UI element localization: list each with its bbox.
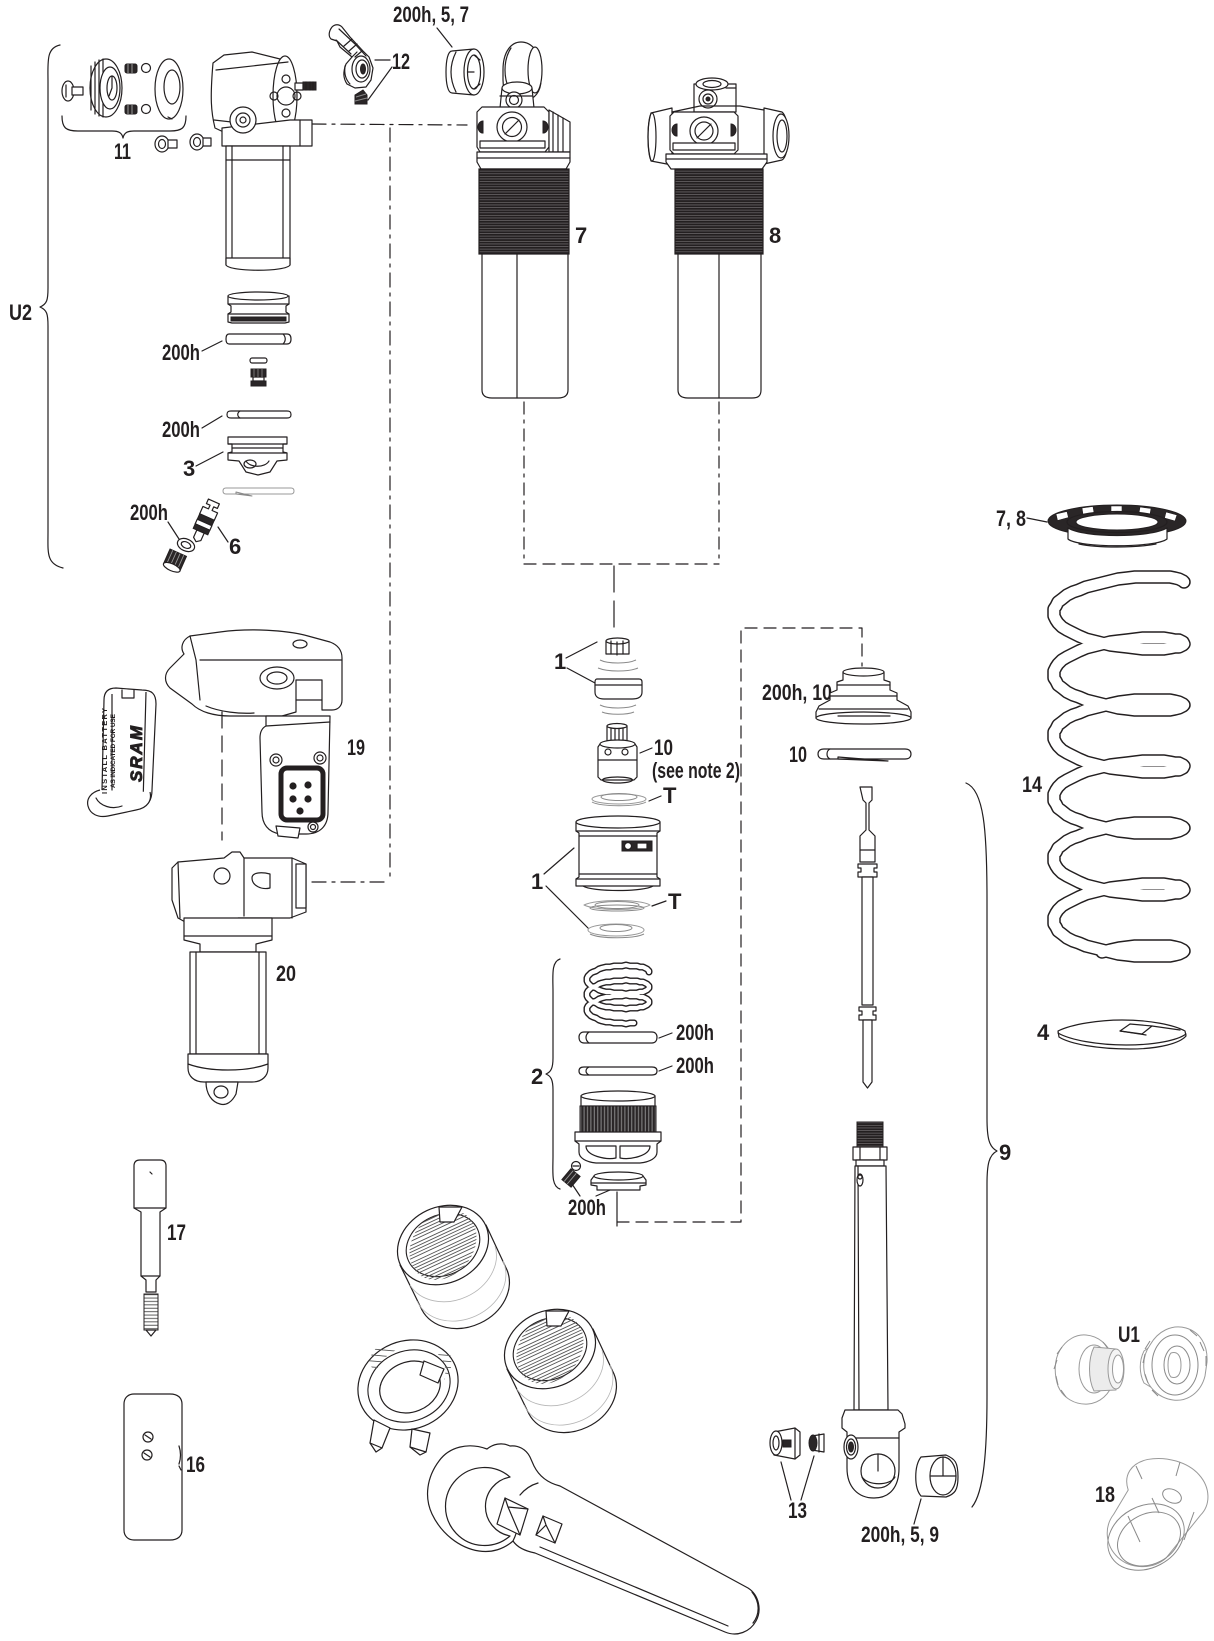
svg-text:7, 8: 7, 8 — [996, 506, 1026, 531]
svg-text:8: 8 — [769, 223, 781, 248]
svg-text:T: T — [668, 889, 682, 914]
svg-text:17: 17 — [167, 1220, 186, 1245]
svg-text:200h: 200h — [162, 417, 200, 442]
svg-text:2: 2 — [531, 1064, 543, 1089]
svg-text:1: 1 — [531, 869, 543, 894]
svg-text:U2: U2 — [9, 300, 32, 325]
svg-text:200h, 5, 9: 200h, 5, 9 — [861, 1522, 939, 1547]
svg-text:200h: 200h — [676, 1053, 714, 1078]
svg-text:6: 6 — [229, 534, 241, 559]
svg-text:9: 9 — [999, 1140, 1011, 1165]
svg-text:AS INDICATED FOR USE: AS INDICATED FOR USE — [110, 713, 117, 788]
svg-text:200h: 200h — [676, 1020, 714, 1045]
svg-text:10: 10 — [654, 735, 673, 760]
svg-text:200h, 5, 7: 200h, 5, 7 — [393, 2, 469, 27]
svg-text:10: 10 — [789, 742, 807, 767]
svg-text:14: 14 — [1022, 772, 1043, 797]
svg-text:INSTALL BATTERY: INSTALL BATTERY — [100, 708, 109, 794]
svg-text:18: 18 — [1095, 1482, 1115, 1507]
svg-text:1: 1 — [554, 649, 566, 674]
svg-text:11: 11 — [114, 139, 131, 164]
svg-text:200h, 10: 200h, 10 — [762, 680, 832, 705]
svg-text:12: 12 — [392, 49, 410, 74]
svg-text:7: 7 — [575, 223, 587, 248]
svg-text:3: 3 — [183, 456, 195, 481]
svg-text:T: T — [663, 783, 677, 808]
svg-text:200h: 200h — [130, 500, 168, 525]
svg-text:20: 20 — [276, 961, 296, 986]
svg-text:16: 16 — [186, 1452, 205, 1477]
svg-text:200h: 200h — [568, 1195, 606, 1220]
svg-text:200h: 200h — [162, 340, 200, 365]
svg-text:(see note 2): (see note 2) — [652, 758, 740, 783]
svg-text:U1: U1 — [1118, 1322, 1140, 1347]
svg-text:13: 13 — [788, 1498, 807, 1523]
svg-text:SRAM: SRAM — [127, 724, 146, 782]
svg-text:19: 19 — [347, 735, 365, 760]
svg-text:4: 4 — [1037, 1020, 1050, 1045]
